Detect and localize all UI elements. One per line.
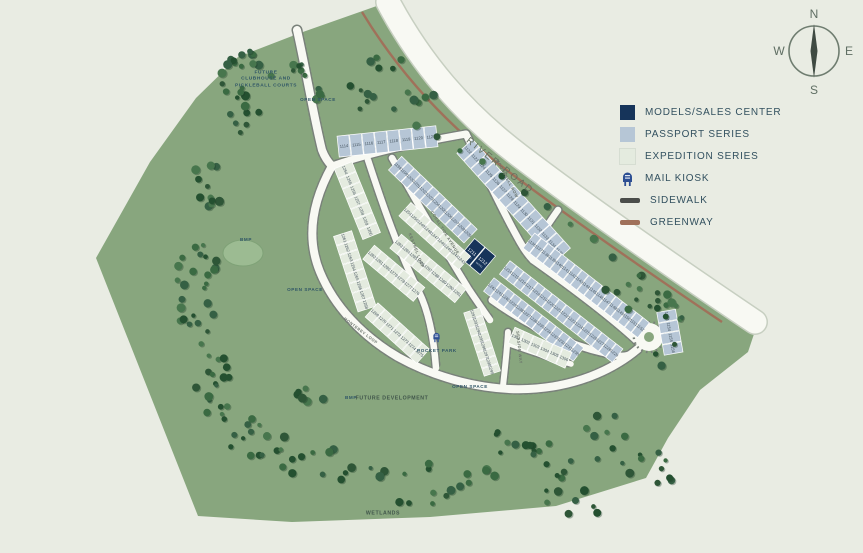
bmp-pond (223, 240, 263, 266)
compass-e: E (845, 44, 853, 58)
expedition_series-swatch (620, 149, 635, 164)
svg-text:1119: 1119 (402, 136, 412, 142)
sidewalk-line-swatch (620, 198, 640, 203)
legend-item-passport_series: PASSPORT SERIES (620, 126, 781, 142)
legend-item-greenway: GREENWAY (620, 214, 781, 230)
legend: MODELS/SALES CENTERPASSPORT SERIESEXPEDI… (620, 104, 781, 230)
greenway-line-swatch (620, 220, 640, 225)
legend-label: MAIL KIOSK (645, 173, 709, 184)
mail-kiosk-icon (620, 171, 635, 186)
compass-w: W (773, 44, 785, 58)
models_sales_center-swatch (620, 105, 635, 120)
legend-item-mail_kiosk: MAIL KIOSK (620, 170, 781, 186)
svg-text:1117: 1117 (377, 139, 387, 145)
site-plan-canvas: 1114111511161117111811191120112111221123… (0, 0, 863, 553)
site-map: 1114111511161117111811191120112111221123… (0, 0, 863, 553)
compass-rose: N E S W (770, 4, 858, 96)
legend-label: SIDEWALK (650, 195, 708, 206)
legend-item-expedition_series: EXPEDITION SERIES (620, 148, 781, 164)
passport_series-swatch (620, 127, 635, 142)
legend-label: EXPEDITION SERIES (645, 151, 759, 162)
compass-s: S (810, 83, 818, 96)
compass-n: N (810, 7, 819, 21)
legend-label: GREENWAY (650, 217, 714, 228)
svg-text:1115: 1115 (352, 142, 362, 148)
compass-needle (811, 24, 818, 78)
svg-text:1120: 1120 (414, 135, 424, 141)
legend-label: MODELS/SALES CENTER (645, 107, 781, 118)
mail-kiosk-icon (432, 331, 441, 343)
legend-label: PASSPORT SERIES (645, 129, 750, 140)
svg-text:1114: 1114 (340, 143, 350, 149)
svg-text:1116: 1116 (364, 140, 374, 146)
svg-text:1118: 1118 (389, 138, 399, 144)
legend-item-sidewalk: SIDEWALK (620, 192, 781, 208)
legend-item-models_sales_center: MODELS/SALES CENTER (620, 104, 781, 120)
